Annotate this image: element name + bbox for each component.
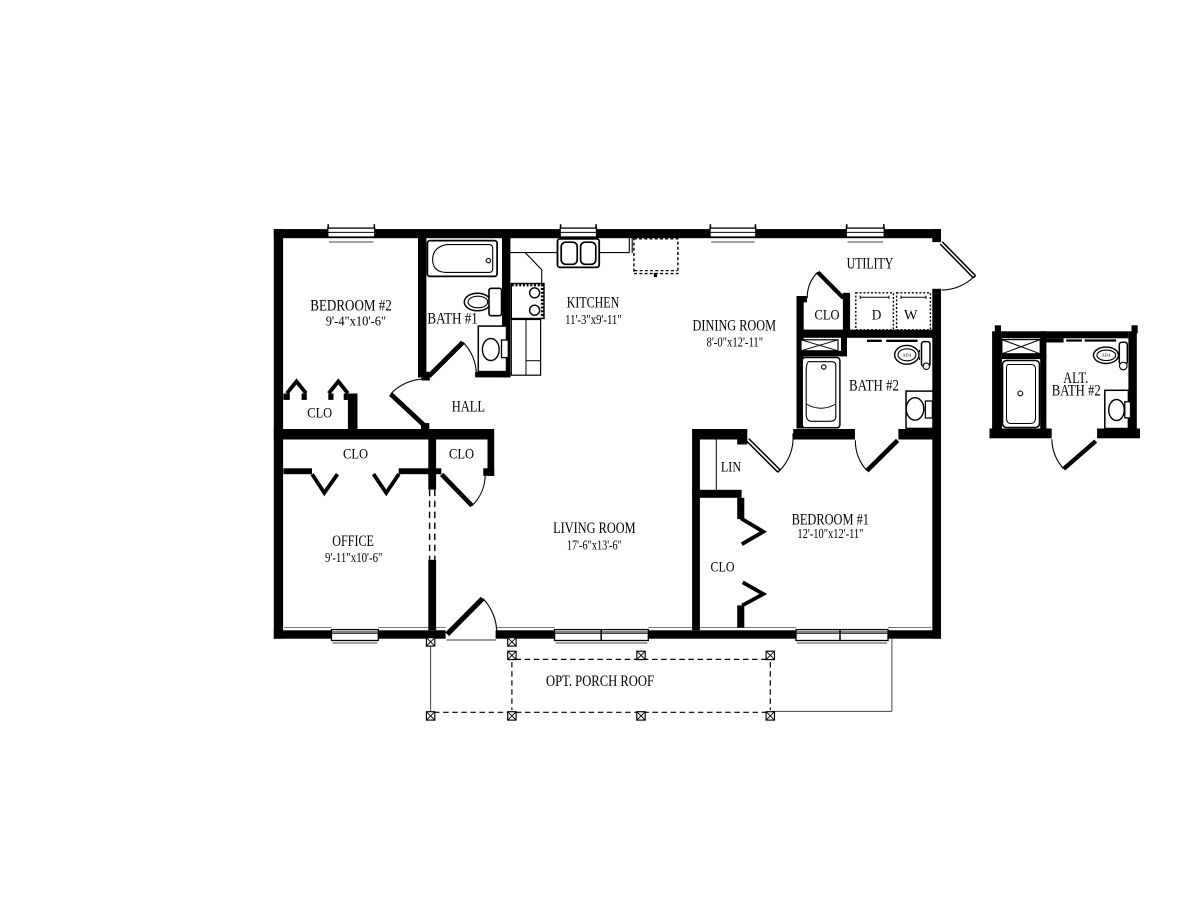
svg-text:CLO: CLO xyxy=(307,406,332,422)
svg-text:CLO: CLO xyxy=(815,307,840,323)
svg-text:BATH #2: BATH #2 xyxy=(849,377,899,394)
svg-text:ADA: ADA xyxy=(902,352,911,357)
svg-text:KITCHEN: KITCHEN xyxy=(567,295,620,312)
svg-text:17'-6"x13'-6": 17'-6"x13'-6" xyxy=(567,538,622,553)
svg-text:BEDROOM #2: BEDROOM #2 xyxy=(310,298,392,315)
svg-text:ADA: ADA xyxy=(1102,353,1111,358)
svg-text:OPT. PORCH ROOF: OPT. PORCH ROOF xyxy=(546,673,654,690)
svg-text:9'-11"x10'-6": 9'-11"x10'-6" xyxy=(325,551,383,566)
svg-text:LIVING ROOM: LIVING ROOM xyxy=(553,520,636,537)
svg-text:8'-0"x12'-11": 8'-0"x12'-11" xyxy=(707,335,764,350)
svg-text:LIN: LIN xyxy=(721,459,742,475)
svg-text:12'-10"x12'-11": 12'-10"x12'-11" xyxy=(797,527,863,542)
svg-text:DINING ROOM: DINING ROOM xyxy=(693,318,777,335)
svg-text:BEDROOM #1: BEDROOM #1 xyxy=(792,512,869,529)
svg-text:D: D xyxy=(872,307,882,323)
svg-text:CLO: CLO xyxy=(343,447,368,463)
svg-text:HALL: HALL xyxy=(452,399,485,416)
svg-text:OFFICE: OFFICE xyxy=(332,533,374,550)
svg-text:11'-3"x9'-11": 11'-3"x9'-11" xyxy=(565,313,622,328)
svg-text:BATH #1: BATH #1 xyxy=(427,311,478,328)
svg-text:CLO: CLO xyxy=(711,560,735,576)
svg-text:BATH #2: BATH #2 xyxy=(1052,383,1101,400)
svg-text:9'-4"x10'-6": 9'-4"x10'-6" xyxy=(326,315,386,330)
svg-text:UTILITY: UTILITY xyxy=(847,256,894,273)
svg-text:CLO: CLO xyxy=(449,447,474,463)
svg-text:W: W xyxy=(904,307,919,323)
